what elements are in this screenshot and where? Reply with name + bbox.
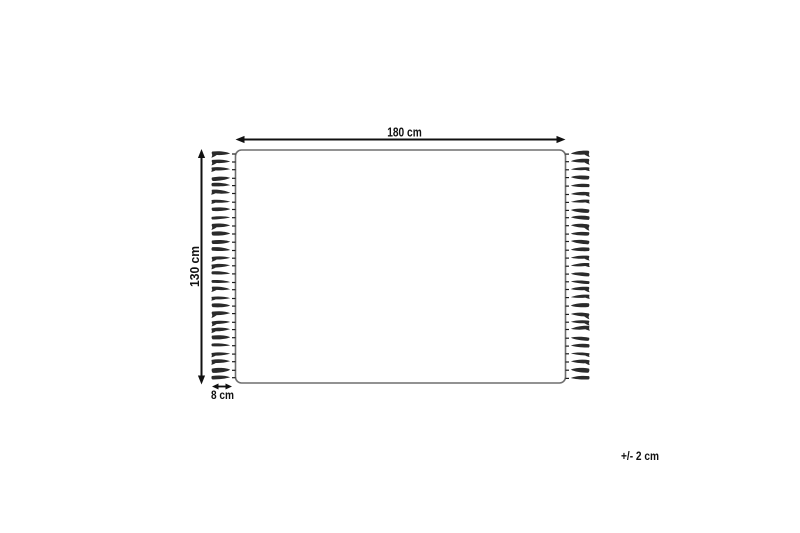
svg-text:180 cm: 180 cm bbox=[387, 126, 422, 140]
svg-text:130 cm: 130 cm bbox=[187, 246, 202, 287]
svg-text:8 cm: 8 cm bbox=[211, 390, 234, 402]
svg-text:+/- 2 cm: +/- 2 cm bbox=[621, 449, 659, 463]
